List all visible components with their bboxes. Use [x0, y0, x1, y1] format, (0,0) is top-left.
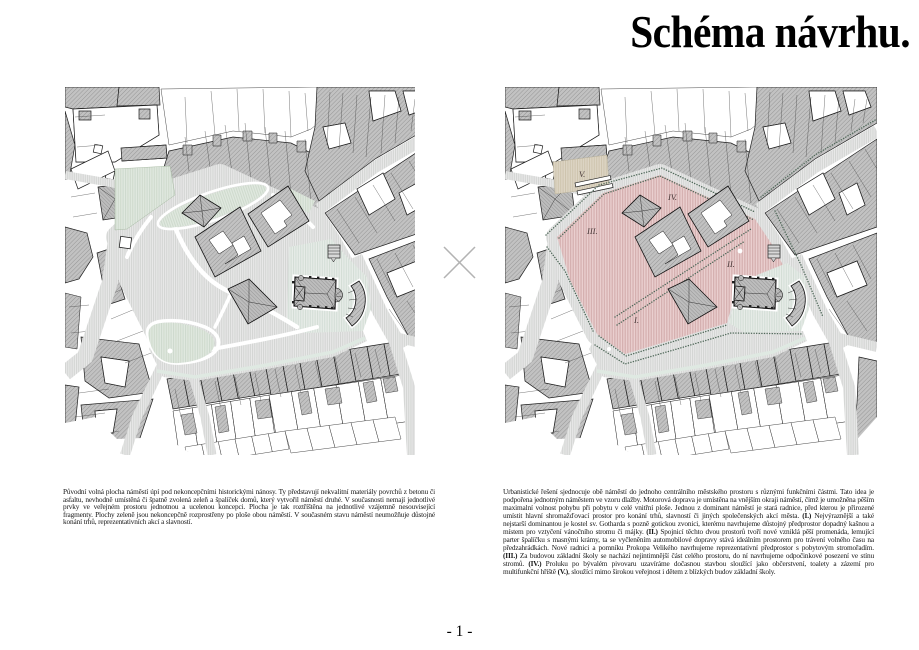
svg-text:III.: III.	[586, 226, 598, 236]
svg-text:II.: II.	[726, 259, 735, 269]
svg-text:IV.: IV.	[667, 192, 678, 202]
svg-text:V.: V.	[579, 169, 586, 179]
svg-text:I.: I.	[633, 315, 639, 325]
